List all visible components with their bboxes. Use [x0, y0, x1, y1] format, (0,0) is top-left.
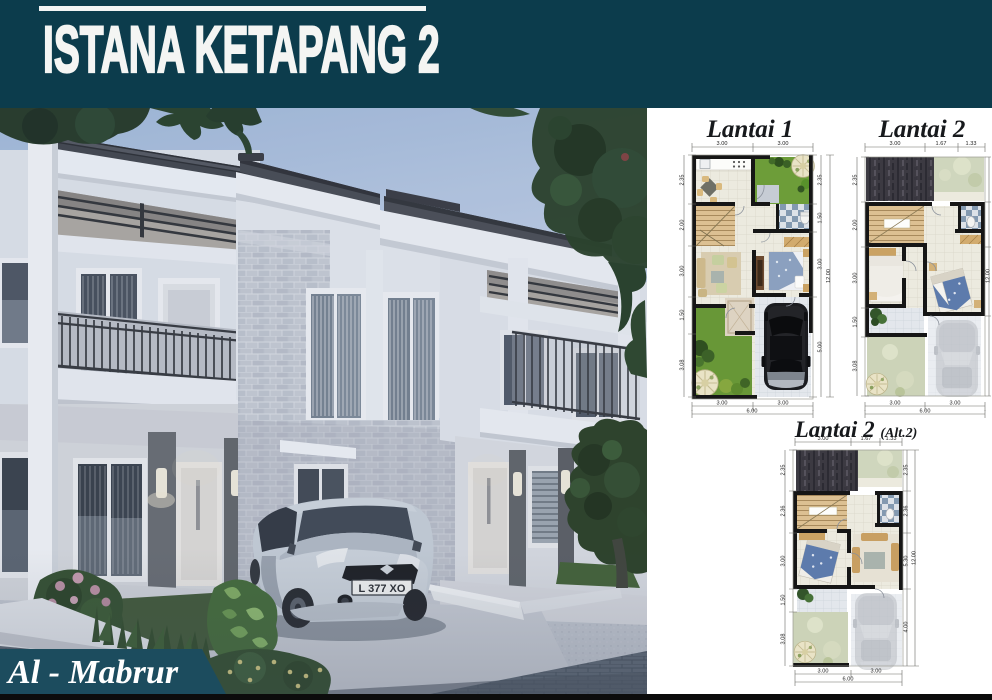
svg-text:3.08: 3.08	[853, 361, 859, 372]
svg-text:6.00: 6.00	[843, 677, 854, 683]
svg-text:3.00: 3.00	[890, 401, 901, 407]
svg-text:Lantai 1: Lantai 1	[706, 116, 794, 143]
svg-text:3.00: 3.00	[818, 436, 829, 442]
svg-text:3.00: 3.00	[818, 259, 824, 270]
svg-text:3.08: 3.08	[680, 360, 686, 371]
svg-text:2.00: 2.00	[853, 220, 859, 231]
svg-text:5.00: 5.00	[818, 342, 824, 353]
svg-text:12.00: 12.00	[826, 269, 832, 283]
svg-text:1.50: 1.50	[853, 317, 859, 328]
svg-text:3.00: 3.00	[853, 273, 859, 284]
svg-text:1.50: 1.50	[818, 213, 824, 224]
svg-text:1.33: 1.33	[966, 141, 977, 147]
svg-text:2.00: 2.00	[680, 220, 686, 231]
svg-text:2.35: 2.35	[853, 175, 859, 186]
svg-text:2.36: 2.36	[781, 506, 787, 517]
svg-text:1.50: 1.50	[781, 595, 787, 606]
svg-text:3.00: 3.00	[871, 669, 882, 675]
svg-text:2.35: 2.35	[781, 465, 787, 476]
svg-text:1.33: 1.33	[886, 436, 897, 442]
svg-text:4.00: 4.00	[904, 622, 910, 633]
svg-text:2.35: 2.35	[818, 175, 824, 186]
svg-text:3.00: 3.00	[778, 141, 789, 147]
svg-text:3.00: 3.00	[680, 266, 686, 277]
svg-text:12.00: 12.00	[986, 269, 992, 283]
svg-text:1.67: 1.67	[861, 436, 872, 442]
svg-text:2.36: 2.36	[904, 506, 910, 517]
svg-text:2.35: 2.35	[904, 465, 910, 476]
svg-text:6.00: 6.00	[920, 409, 931, 415]
svg-text:3.00: 3.00	[818, 669, 829, 675]
svg-text:6.00: 6.00	[747, 409, 758, 415]
svg-text:1.50: 1.50	[680, 310, 686, 321]
svg-text:3.00: 3.00	[781, 556, 787, 567]
svg-text:3.00: 3.00	[717, 401, 728, 407]
svg-text:3.00: 3.00	[950, 401, 961, 407]
svg-text:1.67: 1.67	[936, 141, 947, 147]
svg-text:Al - Mabrur: Al - Mabrur	[6, 654, 179, 691]
svg-text:3.00: 3.00	[890, 141, 901, 147]
svg-text:Lantai 2: Lantai 2	[878, 116, 966, 143]
svg-text:3.00: 3.00	[778, 401, 789, 407]
svg-text:3.08: 3.08	[781, 634, 787, 645]
svg-text:2.35: 2.35	[680, 175, 686, 186]
svg-text:3.00: 3.00	[717, 141, 728, 147]
svg-text:5.30: 5.30	[904, 556, 910, 567]
svg-text:12.00: 12.00	[912, 551, 918, 565]
